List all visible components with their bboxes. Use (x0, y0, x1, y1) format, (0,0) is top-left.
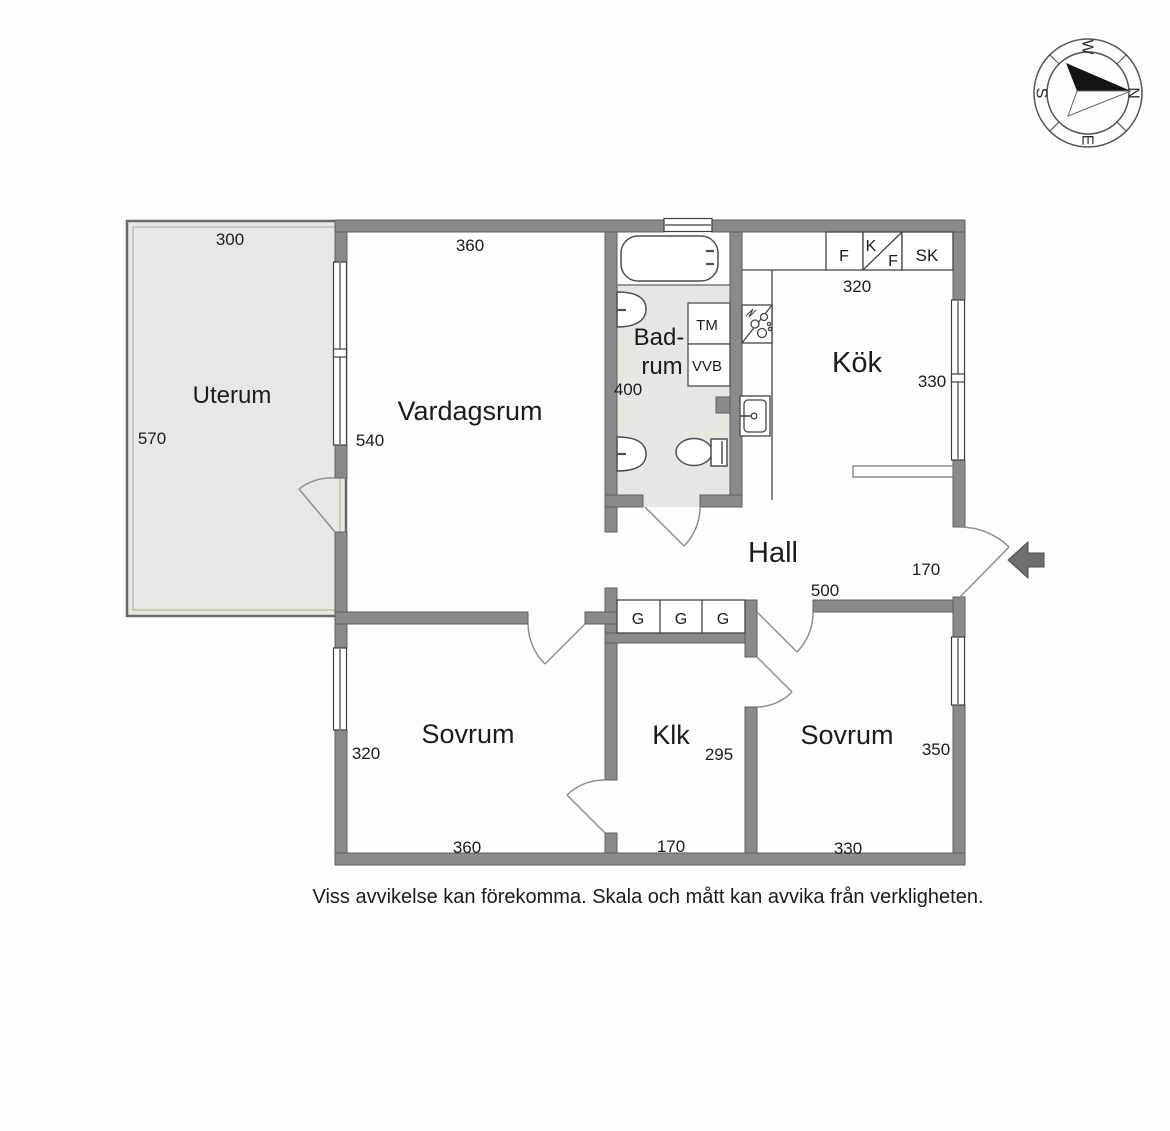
room-label-uterum: Uterum (193, 382, 272, 409)
window-sovrum-right-east (952, 637, 965, 705)
wardrobe-label-g1: G (632, 611, 644, 628)
dim-vardagsrum-width: 360 (456, 236, 484, 255)
door-sovrum-right (757, 612, 813, 652)
wardrobe-label-g2: G (675, 611, 687, 628)
room-label-sovrum-left: Sovrum (421, 719, 514, 749)
door-klk-east (757, 657, 792, 707)
dim-klk-height: 295 (705, 745, 733, 764)
dim-entry-width: 170 (912, 560, 940, 579)
entrance-arrow-icon (1008, 542, 1044, 578)
window-badrum-north (664, 219, 712, 232)
dim-klk-width: 170 (657, 837, 685, 856)
label-tm: TM (696, 317, 718, 334)
bathtub-icon (621, 236, 718, 281)
dim-uterum-height: 570 (138, 429, 166, 448)
room-label-badrum-1: Bad- (634, 324, 685, 351)
room-label-badrum-2: rum (641, 353, 682, 380)
dim-sovrum-left-height: 320 (352, 744, 380, 763)
compass-rose: N E S W (1032, 39, 1142, 147)
room-uterum (127, 221, 346, 616)
compass-needle-icon (1066, 63, 1131, 91)
cabinet-label-f2: F (888, 253, 898, 270)
compass-n: N (1124, 87, 1141, 99)
dim-vardagsrum-height: 540 (356, 431, 384, 450)
window-sovrum-left-west (334, 648, 347, 730)
window-vardagsrum-west (334, 262, 347, 445)
label-vvb: VVB (692, 358, 722, 375)
room-label-klk: Klk (652, 720, 690, 750)
window-kok-east (952, 300, 965, 460)
cabinet-label-f: F (839, 248, 849, 265)
room-label-sovrum-right: Sovrum (800, 720, 893, 750)
dim-hall-width: 500 (811, 581, 839, 600)
door-entrance (960, 527, 1009, 597)
stove-icon (742, 305, 772, 343)
cabinet-label-k: K (866, 238, 877, 255)
uterum-outline (127, 221, 346, 616)
compass-w: W (1078, 39, 1095, 55)
compass-needle-outline-icon (1068, 91, 1131, 116)
cabinet-label-sk: SK (916, 246, 939, 265)
door-klk-west (567, 780, 605, 833)
dim-kok-depth: 330 (918, 372, 946, 391)
floorplan-drawing: N E S W Uterum 300 570 Vardagsrum 360 54… (0, 0, 1170, 1131)
wardrobe-label-g3: G (717, 611, 729, 628)
room-label-kok: Kök (832, 347, 882, 379)
kitchen-sink-icon (740, 396, 770, 436)
dim-sovrum-right-height: 350 (922, 740, 950, 759)
dim-kok-cabinets: 320 (843, 277, 871, 296)
door-sovrum-left (528, 624, 585, 664)
compass-s: S (1032, 88, 1049, 99)
kitchen-bench (853, 466, 953, 477)
floorplan-page: N E S W Uterum 300 570 Vardagsrum 360 54… (0, 0, 1170, 1131)
room-label-vardagsrum: Vardagsrum (397, 396, 542, 426)
dim-badrum: 400 (614, 380, 642, 399)
door-badrum (645, 507, 700, 546)
dim-sovrum-right-width: 330 (834, 839, 862, 858)
compass-e: E (1078, 135, 1095, 146)
room-label-hall: Hall (748, 537, 798, 569)
toilet-icon (676, 439, 727, 467)
doors (299, 478, 1009, 833)
dim-sovrum-left-width: 360 (453, 838, 481, 857)
dim-uterum-width: 300 (216, 230, 244, 249)
disclaimer-text: Viss avvikelse kan förekomma. Skala och … (312, 886, 983, 908)
